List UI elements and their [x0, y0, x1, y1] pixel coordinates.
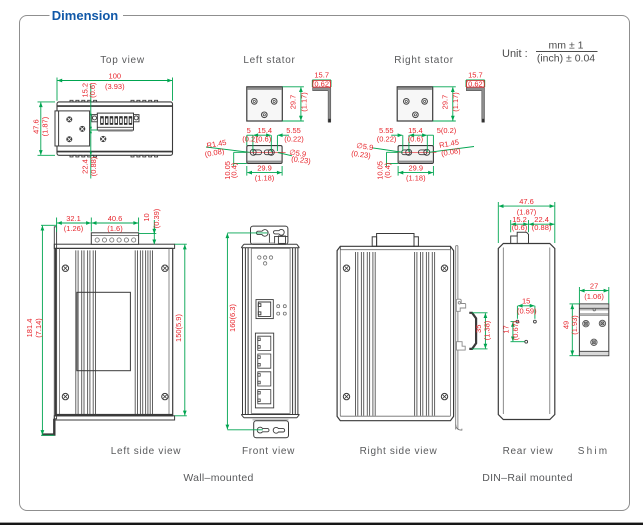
- svg-text:40.6: 40.6: [108, 214, 123, 223]
- svg-text:Rear view: Rear view: [503, 446, 554, 457]
- svg-text:(0.39): (0.39): [152, 208, 161, 228]
- svg-text:47.6: 47.6: [31, 119, 40, 134]
- svg-text:10: 10: [142, 213, 151, 221]
- svg-text:Front view: Front view: [242, 446, 295, 457]
- svg-text:(0.4): (0.4): [383, 162, 392, 178]
- svg-text:(1.06): (1.06): [584, 292, 604, 301]
- svg-text:(3.93): (3.93): [105, 82, 125, 91]
- svg-text:(0.6): (0.6): [88, 82, 97, 98]
- svg-text:Left side view: Left side view: [111, 446, 181, 457]
- svg-text:Right stator: Right stator: [394, 55, 454, 66]
- svg-text:32.1: 32.1: [66, 214, 81, 223]
- svg-text:Top view: Top view: [100, 55, 145, 66]
- svg-text:(inch) ± 0.04: (inch) ± 0.04: [537, 53, 595, 65]
- svg-text:Unit :: Unit :: [502, 48, 528, 60]
- svg-text:15: 15: [522, 297, 530, 306]
- svg-text:5(0.2): 5(0.2): [437, 126, 457, 135]
- svg-text:(1.87): (1.87): [41, 116, 50, 136]
- svg-text:29.7: 29.7: [288, 95, 297, 110]
- svg-text:15.7: 15.7: [468, 71, 483, 80]
- svg-text:47.6: 47.6: [519, 197, 534, 206]
- svg-text:(0.88): (0.88): [89, 156, 98, 176]
- svg-text:(0.22): (0.22): [377, 135, 397, 144]
- svg-text:(0.6): (0.6): [256, 135, 272, 144]
- svg-text:(1.17): (1.17): [299, 92, 308, 112]
- svg-text:Wall–mounted: Wall–mounted: [183, 472, 253, 484]
- svg-text:181.4: 181.4: [25, 319, 34, 338]
- svg-text:(1.18): (1.18): [406, 174, 426, 183]
- svg-text:(1.18): (1.18): [255, 174, 275, 183]
- svg-text:29.9: 29.9: [257, 164, 272, 173]
- svg-text:(1.17): (1.17): [451, 92, 460, 112]
- svg-text:160(6.3): 160(6.3): [228, 304, 237, 332]
- svg-text:(0.22): (0.22): [284, 135, 304, 144]
- svg-text:(1.26): (1.26): [64, 224, 84, 233]
- svg-text:(1.93): (1.93): [570, 315, 579, 335]
- svg-text:DIN–Rail mounted: DIN–Rail mounted: [482, 472, 573, 484]
- svg-text:(1.6): (1.6): [107, 224, 123, 233]
- svg-text:100: 100: [109, 72, 122, 81]
- svg-text:29.9: 29.9: [408, 164, 423, 173]
- svg-text:(0.59): (0.59): [517, 307, 537, 316]
- svg-text:Dimension: Dimension: [52, 8, 119, 23]
- svg-text:(0.4): (0.4): [230, 162, 239, 178]
- svg-text:(0.6): (0.6): [408, 135, 424, 144]
- svg-text:Shim: Shim: [578, 446, 610, 457]
- svg-text:Right side view: Right side view: [360, 446, 438, 457]
- svg-text:(0.6): (0.6): [512, 223, 528, 232]
- svg-text:mm ± 1: mm ± 1: [549, 40, 584, 52]
- svg-text:Left stator: Left stator: [243, 55, 295, 66]
- svg-text:150(5.9): 150(5.9): [174, 314, 183, 342]
- svg-text:(0.67): (0.67): [511, 320, 520, 340]
- svg-text:(1.38): (1.38): [482, 320, 491, 340]
- svg-text:(7.14): (7.14): [34, 318, 43, 338]
- svg-text:17: 17: [501, 325, 510, 333]
- svg-text:15.7: 15.7: [314, 71, 329, 80]
- svg-text:27: 27: [590, 281, 598, 290]
- svg-text:(0.88): (0.88): [532, 223, 552, 232]
- svg-text:29.7: 29.7: [440, 95, 449, 110]
